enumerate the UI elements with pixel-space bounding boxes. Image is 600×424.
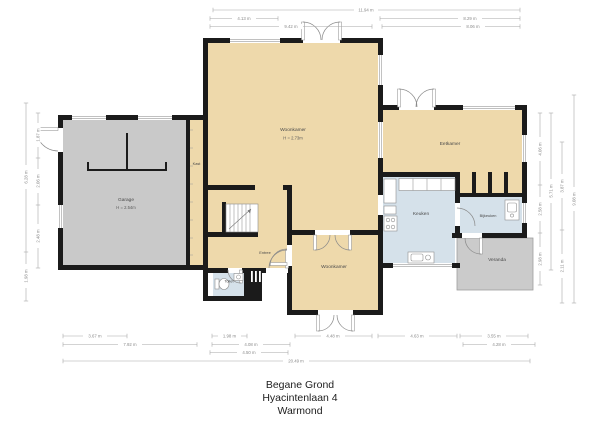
window-woonkamer-right-upper bbox=[378, 55, 383, 85]
svg-text:3.55 m: 3.55 m bbox=[487, 334, 501, 339]
svg-text:4.28 m: 4.28 m bbox=[492, 342, 506, 347]
eetkamer-label: Eetkamer bbox=[440, 141, 461, 147]
svg-text:9.42 m: 9.42 m bbox=[284, 24, 298, 29]
entree-label: Entree bbox=[259, 250, 270, 255]
svg-text:4.48 m: 4.48 m bbox=[326, 334, 340, 339]
garage-height-label: H = 2.54m bbox=[116, 205, 136, 210]
window-garage-top-left bbox=[72, 115, 106, 120]
veranda-floor bbox=[457, 238, 533, 290]
veranda-label: Veranda bbox=[488, 257, 506, 263]
window-woonkamer-top bbox=[230, 38, 280, 43]
svg-text:2.98 m: 2.98 m bbox=[538, 252, 543, 266]
svg-text:4.08 m: 4.08 m bbox=[244, 342, 258, 347]
svg-text:8.06 m: 8.06 m bbox=[466, 24, 480, 29]
kast-label: Kast bbox=[193, 161, 202, 166]
woonkamer2-floor bbox=[287, 233, 378, 310]
svg-text:20.49 m: 20.49 m bbox=[288, 359, 304, 364]
svg-text:8.29 m: 8.29 m bbox=[463, 16, 477, 21]
bijkeuken-label: Bijkeuken bbox=[480, 213, 497, 218]
svg-text:3.87 m: 3.87 m bbox=[560, 179, 565, 193]
title-city: Warmond bbox=[277, 405, 322, 417]
woonkamer-height-label: H = 2.73m bbox=[283, 136, 303, 141]
opening-woonkamer-keuken bbox=[378, 195, 383, 215]
window-garage-top-right bbox=[138, 115, 172, 120]
svg-text:3.67 m: 3.67 m bbox=[88, 334, 102, 339]
svg-text:11.94 m: 11.94 m bbox=[358, 8, 374, 13]
svg-text:4.63 m: 4.63 m bbox=[410, 334, 424, 339]
toilet-label: Toilet bbox=[224, 279, 234, 284]
svg-text:4.13 m: 4.13 m bbox=[237, 16, 251, 21]
svg-text:4.06 m: 4.06 m bbox=[538, 142, 543, 156]
svg-text:2.48 m: 2.48 m bbox=[36, 229, 41, 243]
keuken-label: Keuken bbox=[413, 211, 430, 217]
garage-floor bbox=[63, 120, 186, 265]
svg-text:2.11 m: 2.11 m bbox=[560, 259, 565, 272]
svg-text:1.98 m: 1.98 m bbox=[223, 334, 237, 339]
svg-text:9.08 m: 9.08 m bbox=[572, 192, 577, 206]
kast-floor bbox=[190, 120, 203, 265]
woonkamer-label: Woonkamer bbox=[280, 127, 306, 133]
window-keuken-bottom bbox=[393, 263, 452, 268]
window-eetkamer-right bbox=[522, 135, 527, 162]
svg-text:4.50 m: 4.50 m bbox=[242, 350, 256, 355]
window-woonkamer-right-lower bbox=[378, 122, 383, 158]
duct-slots bbox=[251, 271, 261, 282]
garage-label: Garage bbox=[118, 197, 134, 203]
svg-text:1.87 m: 1.87 m bbox=[36, 128, 41, 142]
bijkeuken-appliance bbox=[505, 200, 519, 220]
title-floor: Begane Grond bbox=[266, 379, 334, 391]
woonkamer2-label: Woonkamer bbox=[321, 264, 347, 270]
title-address: Hyacintenlaan 4 bbox=[262, 392, 337, 404]
stove bbox=[384, 216, 397, 231]
svg-text:7.92 m: 7.92 m bbox=[123, 342, 137, 347]
window-eetkamer-top bbox=[463, 105, 515, 110]
floorplan-canvas: Garage H = 2.54m Kast Woonkamer H = 2.73… bbox=[0, 0, 600, 424]
svg-text:1.98 m: 1.98 m bbox=[24, 269, 29, 283]
svg-text:5.71 m: 5.71 m bbox=[549, 184, 554, 198]
svg-text:6.28 m: 6.28 m bbox=[24, 170, 29, 184]
window-bijkeuken-right bbox=[522, 203, 527, 223]
svg-text:2.58 m: 2.58 m bbox=[538, 202, 543, 216]
window-garage-left bbox=[58, 205, 63, 228]
stairs bbox=[226, 204, 258, 232]
svg-text:2.06 m: 2.06 m bbox=[36, 174, 41, 188]
